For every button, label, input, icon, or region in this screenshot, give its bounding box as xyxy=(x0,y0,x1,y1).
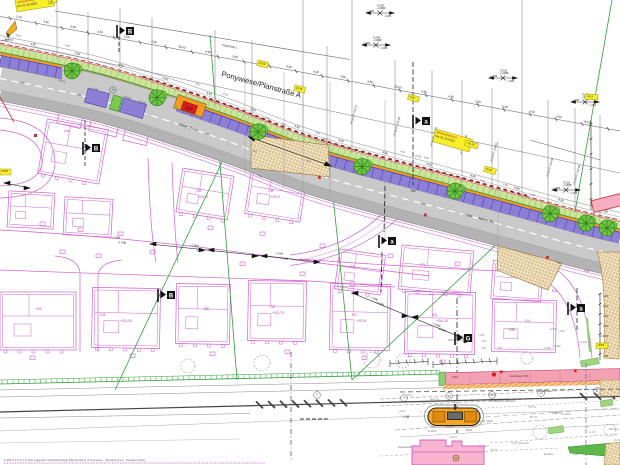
svg-text:+1.0098: +1.0098 xyxy=(377,8,386,10)
svg-text:2.12 R: 2.12 R xyxy=(428,429,436,433)
svg-text:9: 9 xyxy=(491,393,493,397)
svg-text:B: B xyxy=(169,294,174,300)
svg-text:Haltestelle: Haltestelle xyxy=(398,445,412,449)
svg-text:1.91: 1.91 xyxy=(603,304,609,308)
svg-text:4.50: 4.50 xyxy=(481,346,487,350)
svg-text:Bestand: Bestand xyxy=(544,452,554,456)
svg-text:Gehweg 2.50: Gehweg 2.50 xyxy=(510,374,528,378)
svg-text:1.008: 1.008 xyxy=(558,329,565,333)
svg-text:-1.005: -1.005 xyxy=(381,48,388,50)
svg-text:B: B xyxy=(128,30,133,36)
svg-text:-1.005: -1.005 xyxy=(571,193,578,195)
svg-text:10: 10 xyxy=(447,395,451,399)
svg-text:1.90: 1.90 xyxy=(603,294,609,298)
svg-text:1.93: 1.93 xyxy=(603,324,609,328)
svg-text:+1.0098: +1.0098 xyxy=(500,73,509,75)
svg-text:1.96: 1.96 xyxy=(603,354,609,358)
svg-text:G3: G3 xyxy=(420,262,426,267)
svg-text:G8: G8 xyxy=(100,312,106,317)
svg-text:-1.005: -1.005 xyxy=(508,81,515,83)
svg-text:2.50: 2.50 xyxy=(452,375,458,379)
svg-text:B 2.5: B 2.5 xyxy=(491,448,498,452)
svg-text:+2.009: +2.009 xyxy=(579,340,588,344)
svg-text:2x OL: 2x OL xyxy=(614,438,620,442)
svg-text:1.008: 1.008 xyxy=(544,346,551,350)
svg-text:+358.70: +358.70 xyxy=(2,38,13,42)
svg-text:B7: B7 xyxy=(352,312,358,317)
svg-text:Ga: Ga xyxy=(64,128,70,133)
svg-text:B: B xyxy=(94,147,99,153)
svg-text:4.50: 4.50 xyxy=(481,339,487,343)
svg-text:+53.10: +53.10 xyxy=(449,435,458,439)
svg-text:G8: G8 xyxy=(270,304,276,309)
svg-text:+1.0098: +1.0098 xyxy=(563,185,572,187)
svg-text:4.50: 4.50 xyxy=(497,346,503,350)
svg-text:OL: OL xyxy=(585,425,589,429)
svg-text:G 2.5: G 2.5 xyxy=(511,441,518,445)
svg-text:+1.005: +1.005 xyxy=(572,100,580,102)
svg-text:1.94: 1.94 xyxy=(603,334,609,338)
svg-text:BUS: BUS xyxy=(466,428,472,432)
svg-text:10: 10 xyxy=(111,88,115,92)
svg-text:1.98: 1.98 xyxy=(552,411,558,415)
svg-text:7: 7 xyxy=(316,393,318,397)
svg-text:+53.9: +53.9 xyxy=(586,94,593,98)
svg-text:+53.9: +53.9 xyxy=(421,400,428,404)
svg-text:G4: G4 xyxy=(525,318,531,323)
svg-text:752.31: 752.31 xyxy=(528,405,536,409)
svg-text:B5: B5 xyxy=(204,306,210,311)
svg-text:+53.9: +53.9 xyxy=(399,409,406,413)
svg-text:7: 7 xyxy=(403,396,405,400)
svg-text:Bord 12: Bord 12 xyxy=(430,397,440,401)
svg-text:1.92: 1.92 xyxy=(603,314,609,318)
svg-text:G8: G8 xyxy=(268,188,274,193)
svg-text:+53.10: +53.10 xyxy=(120,318,133,323)
svg-text:+1.005: +1.005 xyxy=(367,11,375,13)
svg-text:B4: B4 xyxy=(432,312,438,317)
svg-text:Bestand: Bestand xyxy=(609,427,619,431)
svg-text:Bestand: Bestand xyxy=(519,441,529,445)
svg-text:+53.9: +53.9 xyxy=(356,318,367,323)
svg-text:1.008: 1.008 xyxy=(478,333,485,337)
svg-text:G: G xyxy=(466,337,471,343)
svg-text:G9: G9 xyxy=(36,306,42,311)
svg-text:OL Mast: OL Mast xyxy=(561,412,571,416)
svg-text:G 2.5: G 2.5 xyxy=(589,430,596,434)
svg-text:+53.2: +53.2 xyxy=(270,194,281,199)
svg-text:+53.9: +53.9 xyxy=(598,343,605,347)
svg-text:B4: B4 xyxy=(552,288,558,293)
svg-text:-1.005: -1.005 xyxy=(385,16,392,18)
svg-text:Rückbau Fahrbahn: Rückbau Fahrbahn xyxy=(490,399,516,403)
svg-text:+1.005: +1.005 xyxy=(363,43,371,45)
svg-text:2x OL Mast: 2x OL Mast xyxy=(478,419,493,423)
svg-text:Bord 12: Bord 12 xyxy=(589,395,599,399)
svg-text:G2: G2 xyxy=(350,264,356,269)
svg-text:12: 12 xyxy=(539,391,543,395)
svg-text:+52.9: +52.9 xyxy=(198,194,209,199)
svg-text:G6: G6 xyxy=(196,188,202,193)
svg-text:+1.005: +1.005 xyxy=(553,188,561,190)
svg-text:+1.005: +1.005 xyxy=(490,76,498,78)
svg-text:1:250 0 2.5 5 7.5 10m L: 1:250 0 2.5 5 7.5 10m Lageplan Verkehrsa… xyxy=(4,458,145,462)
svg-text:30.00: 30.00 xyxy=(2,169,9,173)
svg-text:B 7.5: B 7.5 xyxy=(530,415,537,419)
svg-text:+53.70: +53.70 xyxy=(272,310,285,315)
svg-text:1.98: 1.98 xyxy=(403,415,409,419)
svg-text:+1.0098: +1.0098 xyxy=(373,40,382,42)
svg-text:-1.005: -1.005 xyxy=(590,105,597,107)
svg-text:1.008: 1.008 xyxy=(554,344,561,348)
